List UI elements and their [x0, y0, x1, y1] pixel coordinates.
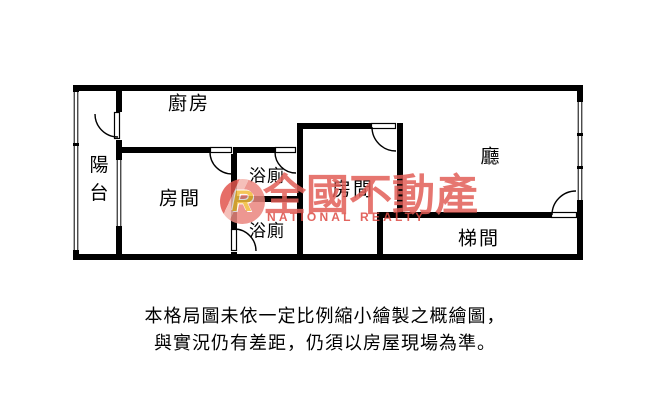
room-label-room2: 房間 — [332, 181, 374, 200]
right-wall-window — [577, 102, 583, 200]
balcony-wall-window — [116, 160, 122, 226]
windows — [73, 92, 583, 250]
room2-door — [371, 122, 397, 151]
room-label-room1: 房間 — [159, 190, 201, 209]
walls — [76, 85, 580, 257]
balcony-door — [95, 112, 123, 140]
floor-plan-page: 廚房 陽台 房間 浴廁 浴廁 房間 廳 梯間 R 全國不動產 NATIONAL … — [0, 0, 650, 401]
room-label-bath-lower: 浴廁 — [249, 223, 285, 240]
entrance-door — [551, 191, 577, 219]
left-wall-window — [73, 92, 79, 250]
room1-door — [210, 146, 233, 174]
room-label-stairwell: 梯間 — [458, 230, 500, 249]
room-label-living: 廳 — [480, 148, 501, 167]
disclaimer-line-2: 與實況仍有差距，仍須以房屋現場為準。 — [0, 329, 650, 355]
disclaimer-line-1: 本格局圖未依一定比例縮小繪製之概繪圖， — [0, 302, 650, 328]
outer-wall — [76, 88, 580, 257]
room-label-bath-upper: 浴廁 — [249, 168, 285, 185]
room-label-kitchen: 廚房 — [168, 95, 210, 114]
room-label-balcony: 陽台 — [88, 152, 110, 208]
